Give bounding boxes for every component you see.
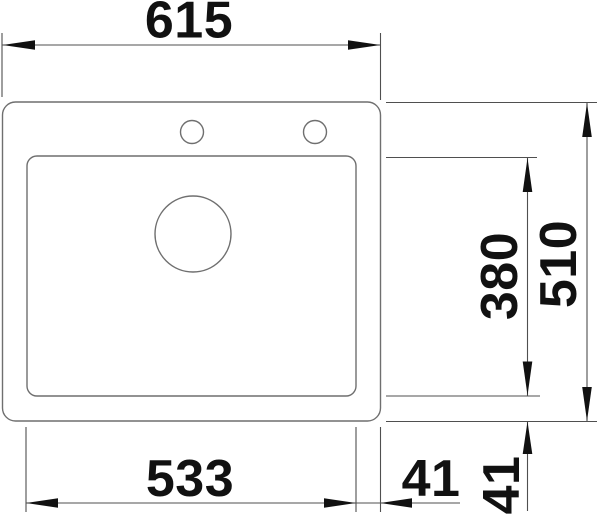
dim-bowl-width: 533 (26, 427, 356, 512)
drain-hole (155, 196, 231, 272)
arrowhead-left (3, 40, 36, 50)
arrowhead-left (26, 498, 58, 508)
sink-dimension-drawing: 615 510 380 41 (0, 0, 600, 518)
arrowhead-right (324, 498, 356, 508)
dim-label-bowl-width: 533 (146, 450, 234, 508)
arrowhead-up (523, 422, 533, 455)
dim-bowl-depth: 380 (386, 158, 540, 397)
arrowhead-right (348, 40, 381, 50)
sink-outer-edge (3, 102, 381, 421)
dim-label-bowl-to-bottom-edge: 41 (473, 456, 531, 515)
dim-bowl-to-bottom-edge: 41 (473, 422, 532, 515)
dim-label-overall-depth: 510 (530, 220, 588, 308)
dim-bowl-to-right-edge: 41 (356, 427, 460, 512)
dim-label-bowl-to-right-edge: 41 (402, 450, 461, 508)
sink-bowl-outline (27, 156, 356, 396)
drawing-canvas: 615 510 380 41 (0, 0, 600, 518)
arrowhead-top (523, 158, 533, 192)
arrowhead-top (582, 103, 592, 137)
faucet-hole-right (304, 121, 327, 144)
arrowhead-bottom (523, 362, 533, 396)
dim-label-overall-width: 615 (145, 0, 233, 50)
dim-overall-width: 615 (2, 0, 381, 100)
dim-label-bowl-depth: 380 (471, 232, 529, 320)
sink-outline (3, 102, 381, 421)
faucet-hole-left (181, 121, 204, 144)
arrowhead-bottom (582, 387, 592, 421)
